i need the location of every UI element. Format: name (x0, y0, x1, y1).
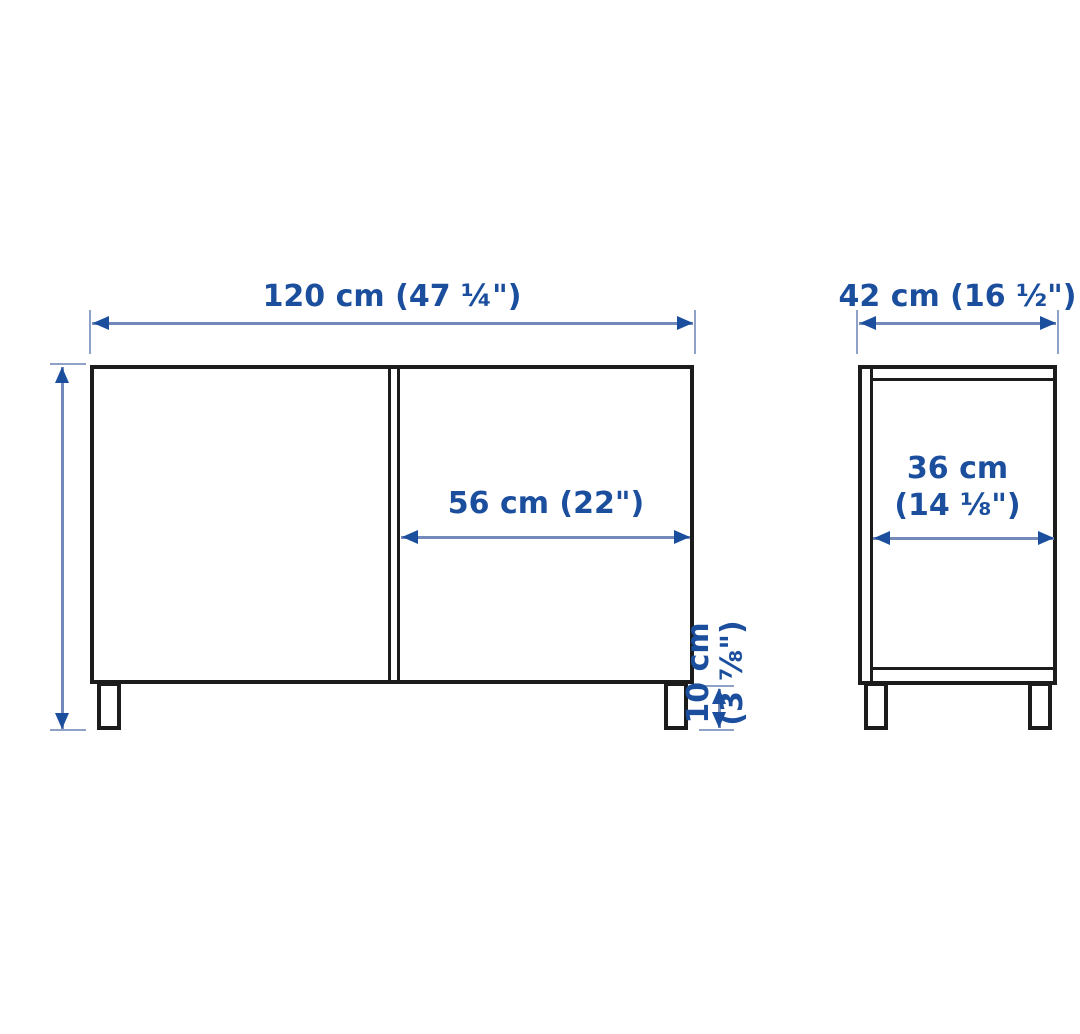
side-view-door-front-line (870, 367, 873, 683)
arrowhead-left-icon (93, 316, 109, 330)
arrowhead-left-icon (402, 530, 418, 544)
extension-line (699, 729, 734, 731)
arrowhead-left-icon (874, 531, 890, 545)
front-view-door-divider (388, 367, 400, 682)
inner-depth-label: 36 cm (14 ⅛") (858, 450, 1057, 524)
side-view-left-leg (864, 682, 888, 730)
leg-height-label-line2: (3 ⅞") (716, 620, 750, 725)
leg-height-label-line1: 10 cm (682, 620, 716, 725)
overall-width-dimension-line (92, 322, 693, 325)
arrowhead-left-icon (860, 316, 876, 330)
arrowhead-right-icon (1038, 531, 1054, 545)
door-width-dimension-line (401, 536, 690, 539)
arrowhead-right-icon (674, 530, 690, 544)
side-view-cabinet-outline (858, 365, 1057, 685)
arrowhead-down-icon (55, 713, 69, 729)
arrowhead-right-icon (1040, 316, 1056, 330)
depth-label: 42 cm (16 ½") (805, 280, 1080, 314)
inner-depth-dimension-line (873, 537, 1054, 540)
extension-line (50, 729, 86, 731)
side-view-bottom-panel-line (873, 667, 1054, 670)
leg-height-label: 10 cm (3 ⅞") (682, 620, 750, 725)
extension-line (694, 310, 696, 354)
depth-dimension-line (859, 322, 1056, 325)
front-view-left-leg (97, 682, 121, 730)
extension-line (50, 363, 86, 365)
overall-width-label: 120 cm (47 ¼") (192, 280, 592, 314)
door-width-label: 56 cm (22") (400, 487, 692, 521)
overall-height-dimension-line (61, 367, 64, 729)
side-view-top-panel-line (873, 378, 1054, 381)
inner-depth-label-line2: (14 ⅛") (858, 487, 1057, 524)
arrowhead-right-icon (677, 316, 693, 330)
inner-depth-label-line1: 36 cm (858, 450, 1057, 487)
extension-line (89, 310, 91, 354)
side-view-right-leg (1028, 682, 1052, 730)
extension-line (1057, 310, 1059, 354)
dimension-diagram: 120 cm (47 ¼") 74 cm (29 ⅛") 56 cm (22")… (0, 0, 1080, 1034)
extension-line (856, 310, 858, 354)
arrowhead-up-icon (55, 367, 69, 383)
